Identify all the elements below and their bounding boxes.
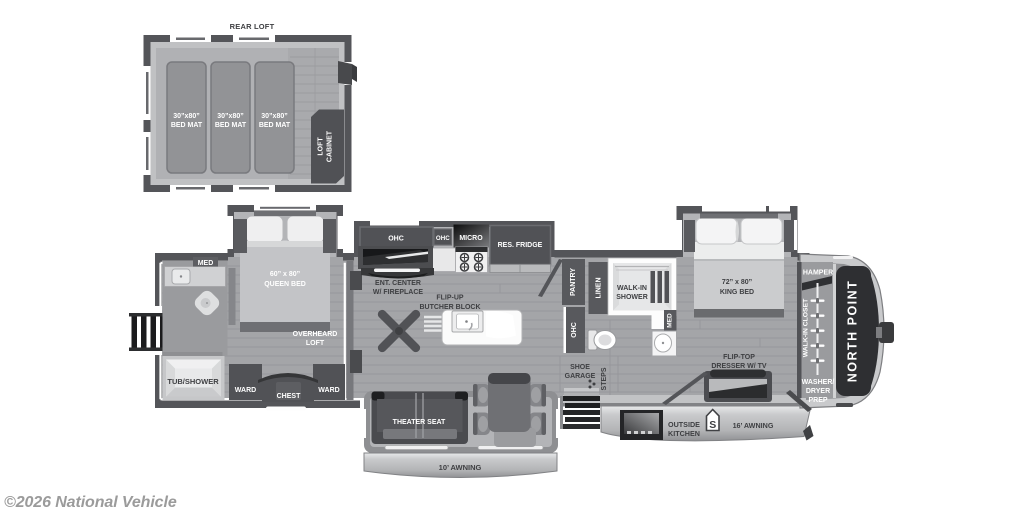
- svg-text:THEATER SEAT: THEATER SEAT: [393, 419, 446, 426]
- svg-text:16’ AWNING: 16’ AWNING: [733, 421, 774, 430]
- svg-text:GARAGE: GARAGE: [565, 373, 596, 380]
- svg-text:WARD: WARD: [318, 387, 339, 394]
- svg-text:PANTRY: PANTRY: [570, 268, 577, 296]
- svg-text:KITCHEN: KITCHEN: [668, 429, 700, 438]
- svg-text:NORTH POINT: NORTH POINT: [846, 280, 860, 383]
- svg-text:60” x 80”: 60” x 80”: [270, 271, 300, 278]
- svg-text:MED: MED: [198, 260, 214, 267]
- svg-text:W/ FIREPLACE: W/ FIREPLACE: [373, 289, 423, 296]
- svg-text:LOFT: LOFT: [318, 137, 325, 156]
- svg-text:SHOE: SHOE: [570, 364, 590, 371]
- svg-text:OHC: OHC: [571, 322, 578, 338]
- svg-text:REAR LOFT: REAR LOFT: [230, 22, 275, 31]
- svg-text:BED MAT: BED MAT: [215, 122, 247, 129]
- svg-text:BED MAT: BED MAT: [259, 122, 291, 129]
- svg-text:WARD: WARD: [235, 387, 256, 394]
- svg-text:MICRO: MICRO: [459, 235, 483, 242]
- svg-text:WALK-IN: WALK-IN: [617, 285, 647, 292]
- svg-text:S: S: [709, 419, 716, 431]
- svg-text:ENT. CENTER: ENT. CENTER: [375, 280, 421, 287]
- svg-text:WASHER/: WASHER/: [802, 379, 835, 386]
- svg-text:WALK-IN CLOSET: WALK-IN CLOSET: [803, 298, 810, 357]
- svg-text:PREP: PREP: [808, 397, 827, 404]
- svg-text:10’ AWNING: 10’ AWNING: [439, 463, 482, 472]
- svg-text:OHC: OHC: [388, 236, 404, 243]
- svg-text:TUB/SHOWER: TUB/SHOWER: [167, 377, 219, 386]
- svg-text:QUEEN BED: QUEEN BED: [264, 281, 306, 288]
- svg-text:OUTSIDE: OUTSIDE: [668, 420, 700, 429]
- svg-text:30”x80”: 30”x80”: [261, 113, 287, 120]
- svg-text:OVERHEARD: OVERHEARD: [293, 331, 338, 338]
- svg-text:30”x80”: 30”x80”: [217, 113, 243, 120]
- svg-text:©2026 National Vehicle: ©2026 National Vehicle: [4, 494, 177, 511]
- svg-text:OHC: OHC: [436, 235, 450, 242]
- svg-text:SHOWER: SHOWER: [616, 294, 648, 301]
- svg-text:RES. FRIDGE: RES. FRIDGE: [498, 242, 543, 249]
- svg-text:STEPS: STEPS: [601, 367, 608, 390]
- svg-text:FLIP-UP: FLIP-UP: [436, 295, 464, 302]
- svg-text:LOFT: LOFT: [306, 340, 325, 347]
- svg-text:KING BED: KING BED: [720, 289, 754, 296]
- svg-text:CHEST: CHEST: [277, 393, 301, 400]
- svg-text:72” x 80”: 72” x 80”: [722, 279, 752, 286]
- svg-text:DRYER: DRYER: [806, 388, 830, 395]
- svg-text:30”x80”: 30”x80”: [173, 113, 199, 120]
- svg-text:CABINET: CABINET: [327, 130, 334, 162]
- svg-text:LINEN: LINEN: [596, 278, 603, 299]
- svg-text:FLIP-TOP: FLIP-TOP: [723, 354, 755, 361]
- svg-text:DRESSER W/ TV: DRESSER W/ TV: [711, 363, 767, 370]
- svg-text:MED: MED: [667, 313, 674, 328]
- svg-text:BED MAT: BED MAT: [171, 122, 203, 129]
- svg-text:HAMPER: HAMPER: [803, 270, 833, 277]
